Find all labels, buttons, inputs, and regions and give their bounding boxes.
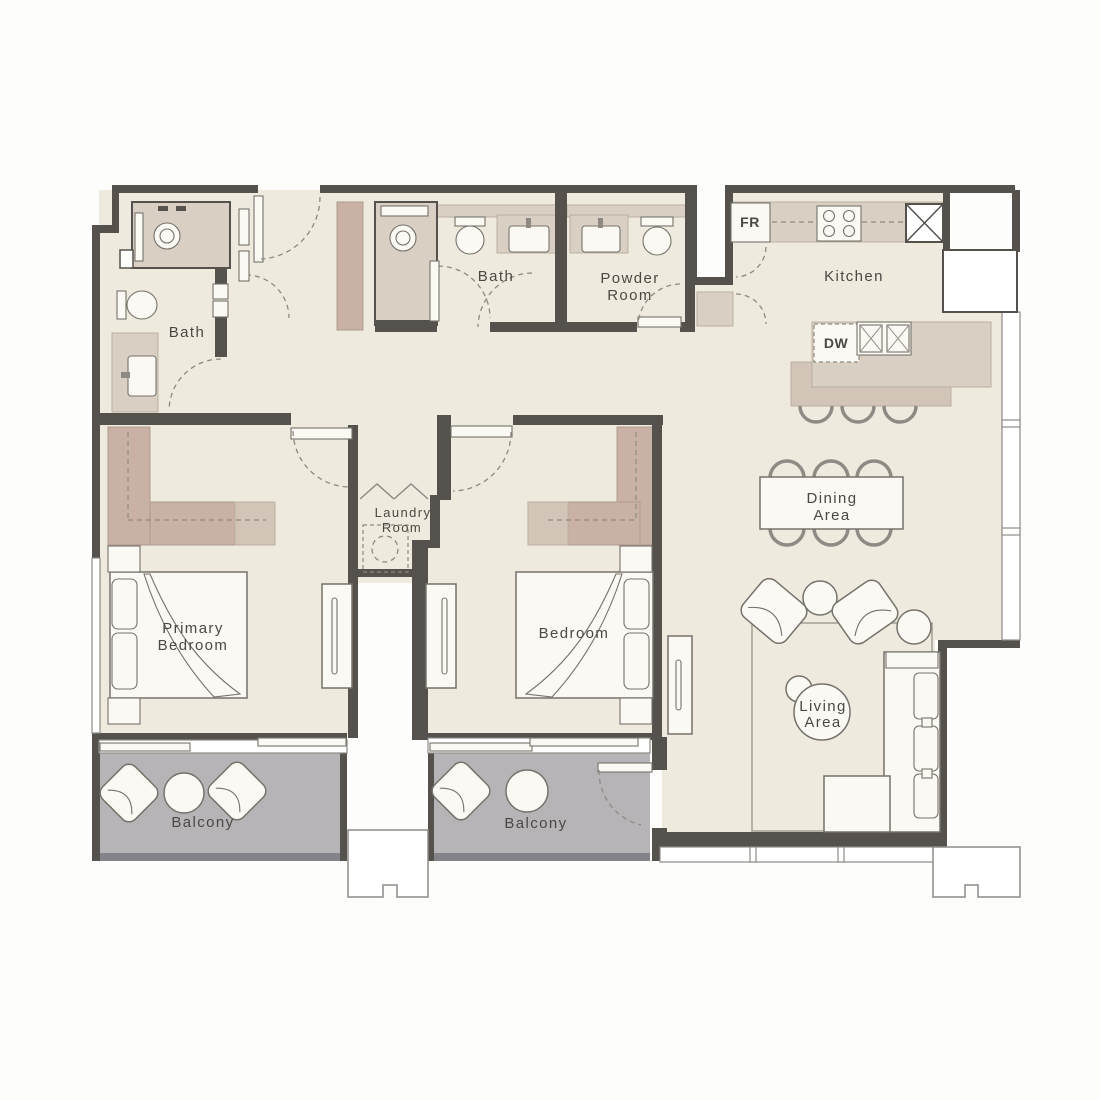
pillow [624, 633, 649, 689]
burner [844, 226, 855, 237]
nightstand [108, 698, 140, 724]
balcony-table [164, 773, 204, 813]
label-balcony-bedroom: Balcony [504, 815, 567, 832]
column-southeast [933, 847, 1020, 897]
label-dining-1: Dining [807, 490, 858, 507]
wall-niche [120, 250, 133, 268]
burner [844, 211, 855, 222]
toilet-icon [643, 227, 671, 255]
shower-enclosure-primary [132, 202, 230, 268]
shower-drain-inner [160, 229, 174, 243]
sofa-cushion [914, 774, 938, 818]
label-living-1: Living [799, 698, 847, 715]
faucet-icon [526, 218, 531, 228]
shower-drain-inner [396, 231, 410, 245]
label-powder-2: Room [607, 287, 653, 304]
shower-head-icon [158, 206, 168, 211]
window-mullion [838, 847, 844, 862]
label-bath-shared: Bath [478, 268, 514, 285]
balcony-door-leaf [598, 763, 652, 772]
kitchen-entry-stub [697, 292, 733, 326]
pillow [112, 579, 137, 629]
window-mullion [750, 847, 756, 862]
floor-plan: Bath Bath Powder Room Kitchen FR DW Dini… [0, 0, 1100, 1100]
service-slot [697, 190, 725, 280]
side-table [897, 610, 931, 644]
nightstand [620, 698, 652, 724]
bedroom-door-leaf [451, 426, 512, 437]
label-living-2: Area [804, 714, 841, 731]
closet-shelf [239, 209, 249, 245]
shower-glass [135, 213, 143, 261]
sofa-cushion [914, 726, 938, 771]
sofa-cushion [914, 673, 938, 719]
dresser-handle [442, 598, 447, 674]
wardrobe-primary-horizontal [150, 502, 235, 545]
window-east [1002, 312, 1020, 640]
toilet-icon [456, 226, 484, 254]
recess-slot [358, 583, 412, 740]
wardrobe-primary-vertical [108, 427, 150, 545]
sliding-panel [100, 743, 190, 751]
balcony-primary-edge [92, 853, 347, 861]
label-powder-1: Powder [600, 270, 659, 287]
label-kitchen: Kitchen [824, 268, 884, 285]
shower-shelf [381, 206, 428, 216]
sliding-panel [430, 743, 532, 751]
console-handle [676, 660, 681, 710]
sliding-panel [258, 738, 346, 746]
pillow [112, 633, 137, 689]
floor-plan-page: Bath Bath Powder Room Kitchen FR DW Dini… [0, 0, 1100, 1100]
shower-control-icon [176, 206, 186, 211]
powder-door-leaf [638, 317, 681, 327]
toilet-tank [455, 217, 485, 226]
label-primary-2: Bedroom [158, 637, 229, 654]
sliding-panel [530, 738, 638, 746]
label-balcony-primary: Balcony [171, 814, 234, 831]
primary-door-leaf [291, 428, 352, 439]
shower-glass [430, 261, 439, 321]
toilet-tank [641, 217, 673, 226]
label-primary-1: Primary [162, 620, 223, 637]
window-living [660, 847, 935, 862]
nightstand [108, 546, 140, 572]
pillow [624, 579, 649, 629]
sofa-chaise [824, 776, 890, 832]
shower-enclosure-shared [375, 202, 437, 325]
window-west [92, 558, 100, 733]
label-dishwasher: DW [824, 335, 849, 351]
sofa-armrest [886, 652, 938, 668]
window-mullion [1002, 420, 1020, 427]
column-south-middle [348, 830, 428, 897]
label-fridge: FR [740, 214, 760, 230]
entry-door-leaf [254, 196, 263, 262]
window-mullion [1002, 528, 1020, 535]
wardrobe-primary-end [235, 502, 275, 545]
wall-shelf [213, 284, 228, 299]
wall-shelf [213, 301, 228, 317]
toilet-tank [117, 291, 126, 319]
sofa-joint [922, 718, 932, 727]
label-bedroom: Bedroom [539, 625, 610, 642]
balcony-bedroom-edge [428, 853, 650, 861]
burner [824, 226, 835, 237]
label-dining-2: Area [813, 507, 850, 524]
faucet-icon [121, 372, 130, 378]
sink-icon [128, 356, 156, 396]
sink-icon [582, 226, 620, 252]
nightstand [620, 546, 652, 572]
faucet-icon [598, 218, 603, 228]
dresser [426, 584, 456, 688]
column-northeast [943, 250, 1017, 312]
balcony-table [506, 770, 548, 812]
label-laundry-2: Room [382, 520, 422, 535]
label-laundry-1: Laundry [375, 505, 432, 520]
label-bath-primary: Bath [169, 324, 205, 341]
sink-icon [509, 226, 549, 252]
closet-shelf [239, 251, 249, 281]
sofa-joint [922, 769, 932, 778]
dresser-handle [332, 598, 337, 674]
wardrobe-bedroom-horizontal [568, 502, 640, 545]
wardrobe-bedroom-end [528, 502, 568, 545]
stove-icon [817, 206, 861, 241]
burner [824, 211, 835, 222]
toilet-icon [127, 291, 157, 319]
foyer-closet [337, 202, 363, 330]
